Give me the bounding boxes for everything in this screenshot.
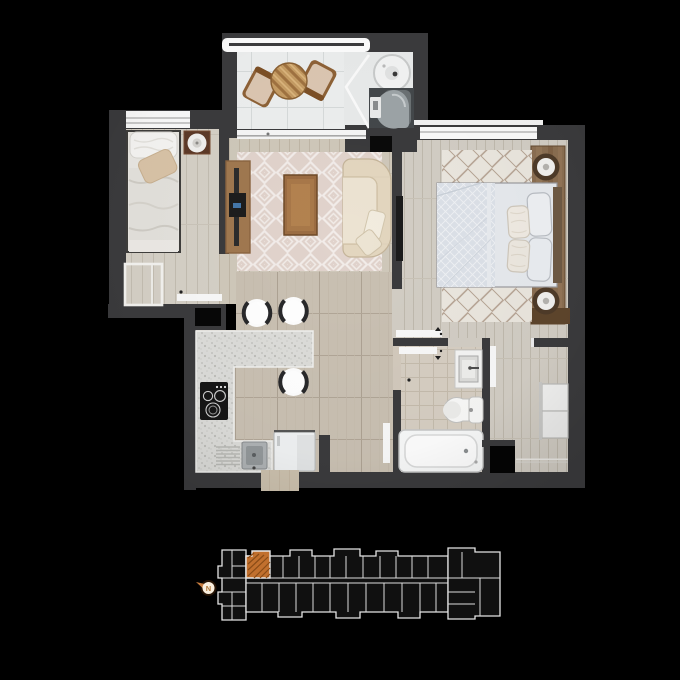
svg-text:N: N: [206, 584, 211, 593]
